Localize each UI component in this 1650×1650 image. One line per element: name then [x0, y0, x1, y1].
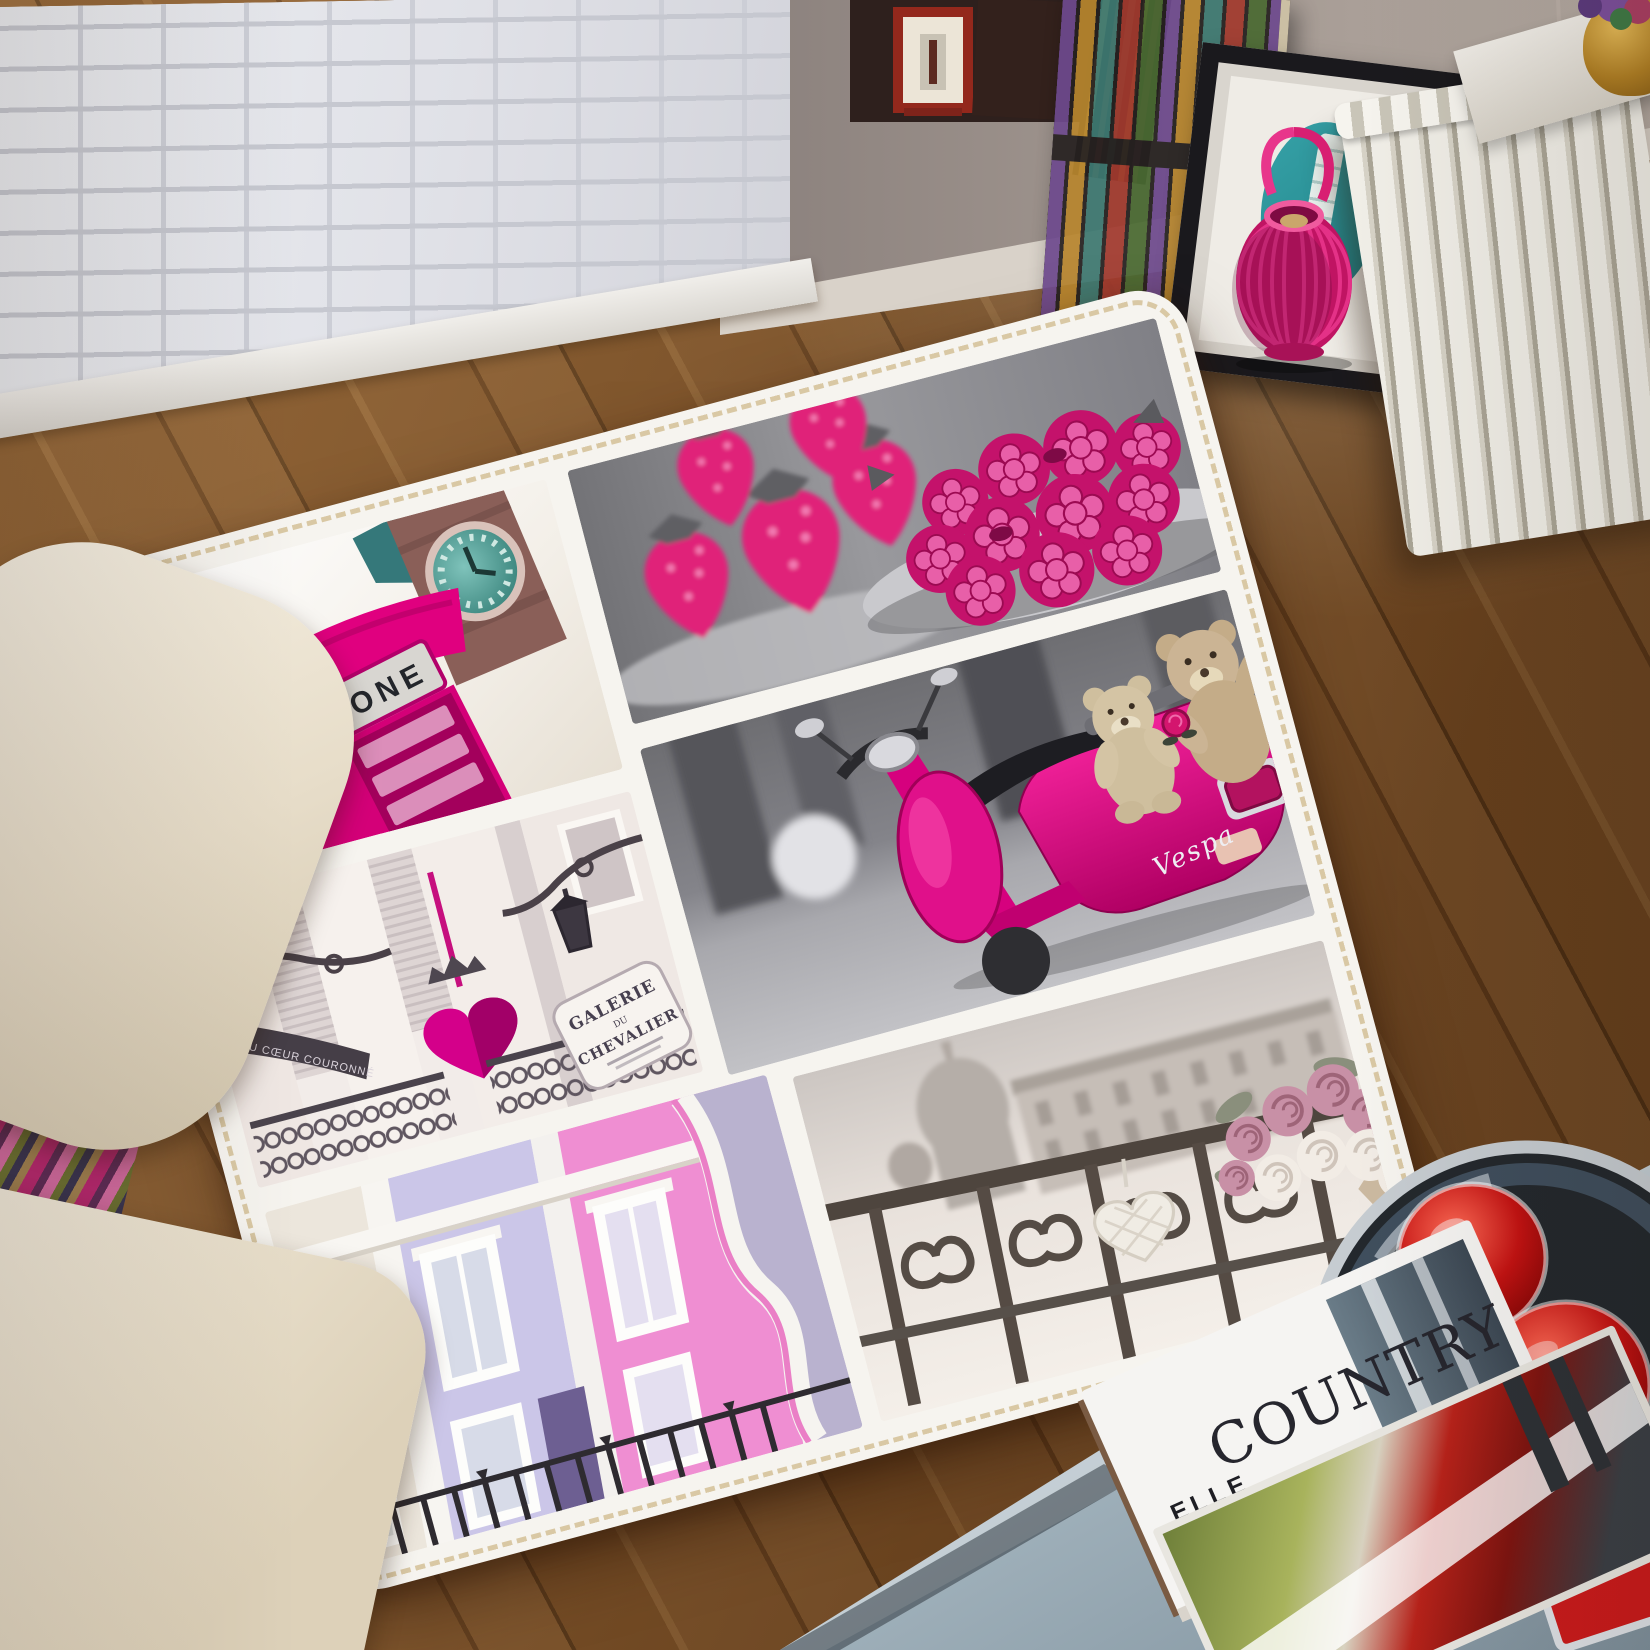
galerie-sign-line3: CHEVALIER [575, 1004, 681, 1070]
crown-ornament-icon [423, 948, 487, 985]
framed-mini-picture [898, 12, 968, 116]
big-ben-clock [410, 506, 541, 637]
raspberries [865, 387, 1213, 647]
leaf-icon [1610, 8, 1632, 30]
big-ben-tower [351, 479, 567, 700]
booth-glazing [346, 693, 506, 853]
front-door [538, 1386, 605, 1511]
banner-text: AU CŒUR COURONNÉ [240, 1039, 376, 1081]
iron-bracket-right [493, 837, 665, 965]
handlebar [835, 727, 932, 776]
taillight [1223, 764, 1283, 813]
pink-rose-icon [1155, 706, 1198, 747]
pink-scooter: Vespa [791, 589, 1315, 1037]
vespa-logo: Vespa [1149, 819, 1241, 883]
scooter-seat [925, 719, 1130, 830]
street-background [666, 589, 1259, 927]
rear-rack [1082, 671, 1211, 738]
steering-column [876, 727, 1019, 943]
room-photo: TELEPHONE [0, 0, 1650, 1650]
street-lamp-icon [554, 902, 596, 953]
mirror-icon [928, 665, 960, 689]
hanging-heart [384, 860, 530, 1090]
plate [851, 460, 1222, 658]
galerie-sign-line2: DU [612, 1015, 630, 1031]
paper-heart-icon [418, 992, 530, 1091]
window [561, 813, 639, 913]
front-shield [884, 763, 1016, 951]
headlight [862, 727, 922, 776]
scooter-rear-body [1004, 682, 1308, 936]
galerie-sign-line1: GALERIE [566, 976, 660, 1036]
pink-lantern [1232, 120, 1362, 375]
lantern-handle [1294, 132, 1329, 200]
rug-tile-scooter: Vespa [640, 589, 1316, 1075]
balconies [250, 1009, 700, 1187]
coffee-table: ELLE DECORATION COUNTRY [700, 1100, 1650, 1650]
mirror-icon [792, 715, 826, 742]
candle [1280, 214, 1308, 228]
shutter [367, 848, 457, 1032]
galerie-sign: GALERIE DU CHEVALIER [548, 957, 696, 1094]
teddy-bear-left [1067, 669, 1199, 831]
